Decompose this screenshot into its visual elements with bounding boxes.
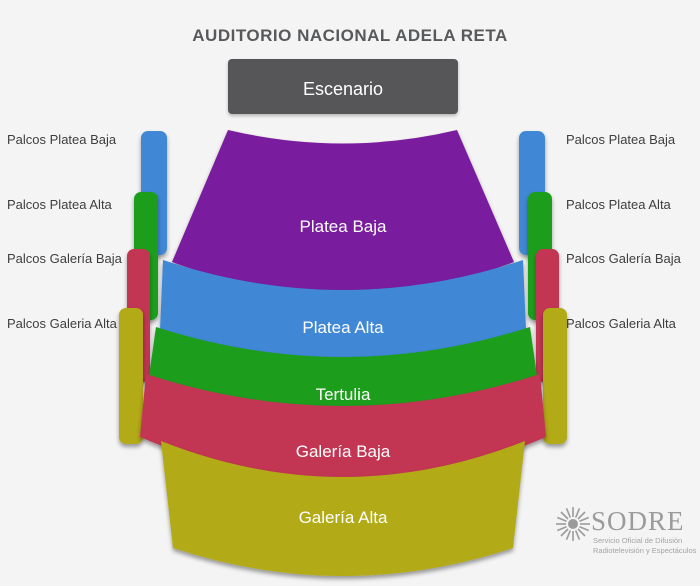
logo-tagline-2: Radiotelevisión y Espectáculos — [593, 546, 696, 556]
section-label-tertulia: Tertulia — [316, 385, 371, 404]
sodre-logo: SODRE Servicio Oficial de Difusión Radio… — [553, 502, 700, 560]
palco-galeria-alta-right[interactable] — [543, 308, 567, 444]
section-label-platea-baja: Platea Baja — [300, 217, 387, 236]
section-label-platea-alta: Platea Alta — [302, 318, 384, 337]
logo-wordmark: SODRE — [591, 506, 685, 537]
logo-tagline-1: Servicio Oficial de Difusión — [593, 536, 682, 546]
seating-map: AUDITORIO NACIONAL ADELA RETA Palcos Pla… — [0, 0, 700, 586]
venue-svg: Escenario Platea Baja Platea Alta Tertul… — [0, 0, 700, 586]
section-platea-baja[interactable] — [172, 130, 514, 294]
section-label-galeria-alta: Galería Alta — [299, 508, 388, 527]
section-label-galeria-baja: Galería Baja — [296, 442, 391, 461]
stage-label: Escenario — [303, 79, 383, 99]
sunburst-icon — [553, 504, 593, 544]
palco-galeria-alta-left[interactable] — [119, 308, 143, 444]
